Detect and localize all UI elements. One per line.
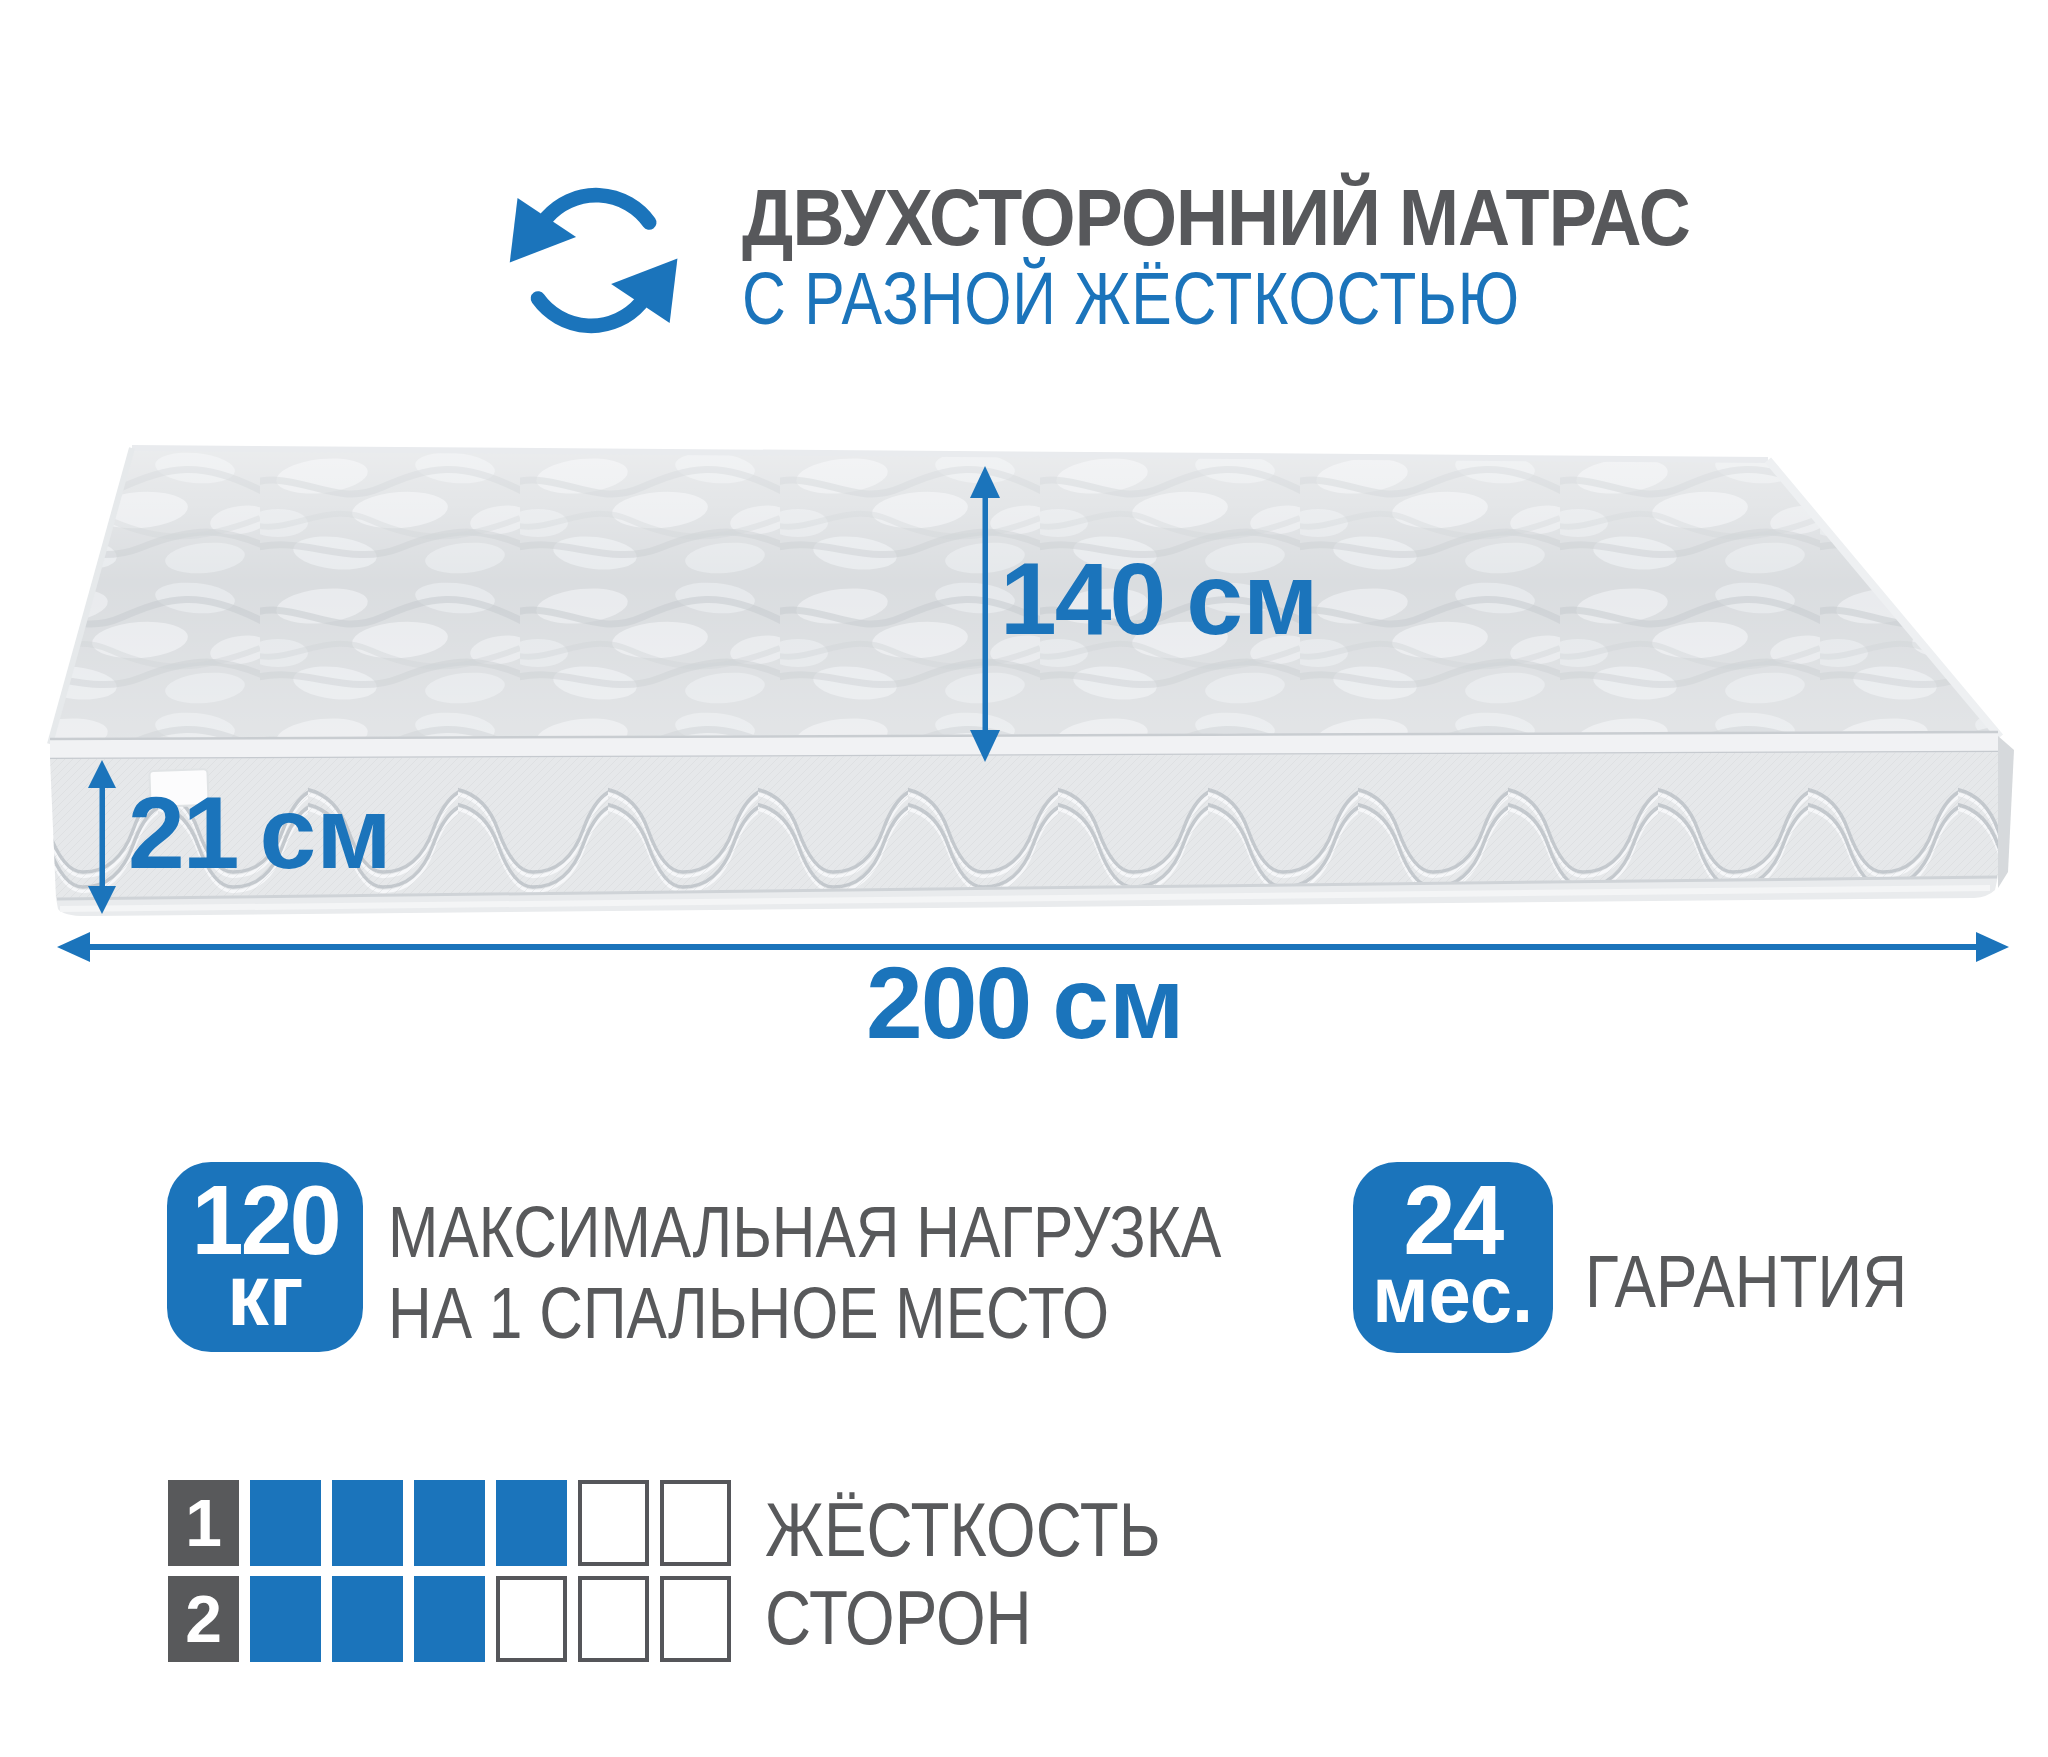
page-title: ДВУХСТОРОННИЙ МАТРАС — [742, 178, 1690, 258]
firmness-cell-filled — [332, 1480, 403, 1566]
mattress-infographic: ДВУХСТОРОННИЙ МАТРАС С РАЗНОЙ ЖЁСТКОСТЬЮ… — [0, 0, 2048, 1757]
firmness-cell-filled — [250, 1480, 321, 1566]
firmness-cell-filled — [414, 1576, 485, 1662]
max-load-unit: кг — [227, 1251, 304, 1339]
firmness-cell-empty — [496, 1576, 567, 1662]
max-load-label-line1: МАКСИМАЛЬНАЯ НАГРУЗКА — [388, 1192, 1221, 1273]
warranty-badge: 24 мес. — [1353, 1162, 1553, 1353]
firmness-cell-filled — [414, 1480, 485, 1566]
warranty-label-line1: ГАРАНТИЯ — [1585, 1241, 1907, 1322]
dim-width-unit: см — [1052, 946, 1184, 1060]
firmness-row-1-label: 1 — [168, 1480, 239, 1566]
dim-height-unit: см — [259, 776, 391, 890]
firmness-caption-line2: СТОРОН — [765, 1574, 1032, 1662]
firmness-row-1: 1 — [168, 1480, 731, 1566]
firmness-cell-empty — [578, 1480, 649, 1566]
firmness-cell-filled — [496, 1480, 567, 1566]
rotate-arrows-icon — [510, 195, 678, 326]
firmness-row-1-cells — [250, 1480, 731, 1566]
max-load-label-line2: НА 1 СПАЛЬНОЕ МЕСТО — [388, 1273, 1109, 1354]
firmness-cell-empty — [660, 1576, 731, 1662]
firmness-row-2-label: 2 — [168, 1576, 239, 1662]
firmness-cell-empty — [660, 1480, 731, 1566]
dim-length-unit: см — [1186, 542, 1318, 656]
firmness-row-2-cells — [250, 1576, 731, 1662]
warranty-unit: мес. — [1373, 1255, 1534, 1335]
max-load-badge: 120 кг — [167, 1162, 363, 1352]
dim-label-height: 21см — [128, 782, 392, 884]
firmness-cell-filled — [250, 1576, 321, 1662]
firmness-cell-filled — [332, 1576, 403, 1662]
dim-width-value: 200 — [866, 946, 1030, 1060]
dim-height-value: 21 — [128, 776, 237, 890]
dim-label-length: 140см — [1000, 548, 1318, 650]
firmness-row-2: 2 — [168, 1576, 731, 1662]
firmness-cell-empty — [578, 1576, 649, 1662]
page-subtitle: С РАЗНОЙ ЖЁСТКОСТЬЮ — [742, 262, 1520, 336]
warranty-label: ГАРАНТИЯ — [1585, 1241, 1969, 1322]
dim-label-width: 200см — [866, 952, 1184, 1054]
max-load-label: МАКСИМАЛЬНАЯ НАГРУЗКА НА 1 СПАЛЬНОЕ МЕСТ… — [388, 1192, 1380, 1354]
firmness-caption-line1: ЖЁСТКОСТЬ — [765, 1486, 1161, 1574]
dim-length-value: 140 — [1000, 542, 1164, 656]
firmness-caption: ЖЁСТКОСТЬ СТОРОН — [765, 1486, 1236, 1662]
